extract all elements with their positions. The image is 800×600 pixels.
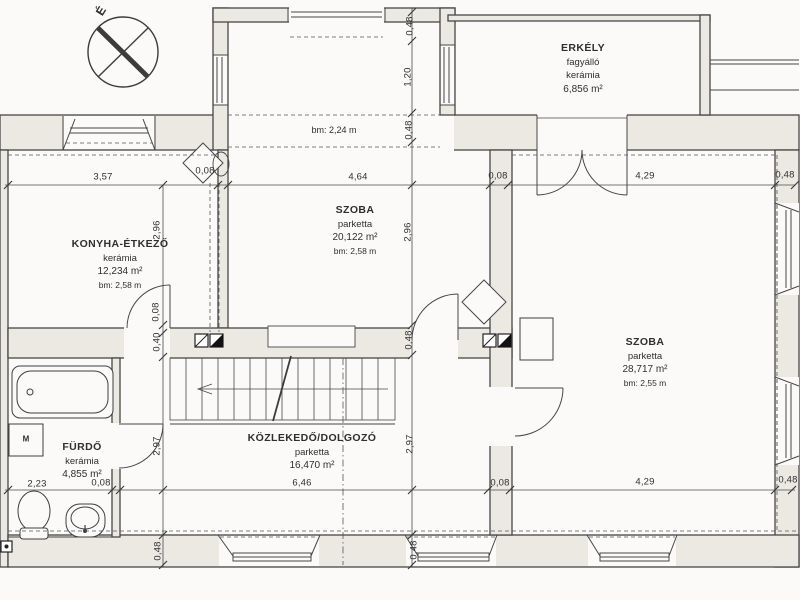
dim-label: 0,08 xyxy=(488,171,507,182)
kitchen-window xyxy=(63,116,155,150)
cabinet xyxy=(520,318,553,360)
floor-drain-icon xyxy=(1,541,12,552)
dim-label: 2,23 xyxy=(27,479,46,490)
room-right-area: 28,717 m² xyxy=(622,363,667,377)
dim-label: 0,48 xyxy=(153,541,164,560)
bay-left-window xyxy=(213,55,228,105)
bay-right-window xyxy=(440,45,455,105)
room-right-height: bm: 2,55 m xyxy=(622,377,667,391)
room-label-hall: KÖZLEKEDŐ/DOLGOZÓ parketta 16,470 m² xyxy=(248,432,377,473)
dim-label: 0,40 xyxy=(152,332,163,351)
dim-label: 0,08 xyxy=(490,478,509,489)
bottom-window-3 xyxy=(587,535,677,566)
hall-area: 16,470 m² xyxy=(248,459,377,473)
room-middle-area: 20,122 m² xyxy=(332,231,377,245)
bathroom-name: FÜRDŐ xyxy=(62,441,101,455)
dim-label: 4,64 xyxy=(348,172,367,183)
floor-plan-sheet: É ERKÉLY fagyálló kerámia 6,856 m² KONYH… xyxy=(0,0,800,600)
right-wall-window-1 xyxy=(775,203,799,295)
north-arrow-icon xyxy=(88,17,158,87)
balcony-name: ERKÉLY xyxy=(561,42,605,56)
dim-label: 0,48 xyxy=(409,540,420,559)
room-label-bathroom: FÜRDŐ kerámia 4,855 m² xyxy=(62,441,101,482)
right-room-door-arc xyxy=(515,388,563,436)
hall-floor: parketta xyxy=(248,445,377,459)
room-label-room-middle: SZOBA parketta 20,122 m² bm: 2,58 m xyxy=(332,204,377,258)
dim-label: 4,29 xyxy=(635,477,654,488)
wall-niche xyxy=(268,326,355,347)
dim-label: 2,96 xyxy=(152,220,163,239)
toilet-icon xyxy=(18,491,50,539)
dim-label: 0,08 xyxy=(151,302,162,321)
dim-label: 4,29 xyxy=(635,171,654,182)
dim-label: 2,97 xyxy=(405,434,416,453)
floor-plan-drawing xyxy=(0,0,800,600)
room-right-name: SZOBA xyxy=(622,336,667,350)
kitchen-floor: kerámia xyxy=(72,252,169,266)
room-middle-name: SZOBA xyxy=(332,204,377,218)
balcony-note: fagyálló xyxy=(561,56,605,70)
bay-height-label: bm: 2,24 m xyxy=(311,125,356,135)
room-middle-floor: parketta xyxy=(332,218,377,232)
bathroom-floor: kerámia xyxy=(62,454,101,468)
dim-label: 0,48 xyxy=(775,170,794,181)
room-label-kitchen: KONYHA-ÉTKEZŐ kerámia 12,234 m² bm: 2,58… xyxy=(72,238,169,292)
dim-label: 1,20 xyxy=(403,67,414,86)
dim-label: 0,48 xyxy=(404,330,415,349)
balcony-floor: kerámia xyxy=(561,69,605,83)
dim-label: 0,08 xyxy=(195,166,214,177)
room-label-balcony: ERKÉLY fagyálló kerámia 6,856 m² xyxy=(561,42,605,96)
dim-label: 0,48 xyxy=(404,120,415,139)
right-wall-window-2 xyxy=(775,377,799,465)
dim-label: 0,48 xyxy=(405,16,416,35)
right-room-door-opening xyxy=(489,387,513,446)
balcony-french-door xyxy=(537,113,627,195)
dim-label: 2,97 xyxy=(152,436,163,455)
dim-label: 3,57 xyxy=(93,172,112,183)
dim-label: 0,48 xyxy=(778,475,797,486)
room-right-floor: parketta xyxy=(622,350,667,364)
room-label-room-right: SZOBA parketta 28,717 m² bm: 2,55 m xyxy=(622,336,667,390)
washing-machine-label: M xyxy=(23,435,30,444)
kitchen-area: 12,234 m² xyxy=(72,265,169,279)
kitchen-name: KONYHA-ÉTKEZŐ xyxy=(72,238,169,252)
hall-name: KÖZLEKEDŐ/DOLGOZÓ xyxy=(248,432,377,446)
kitchen-height: bm: 2,58 m xyxy=(72,279,169,293)
dim-label: 2,96 xyxy=(403,222,414,241)
dim-label: 0,08 xyxy=(91,478,110,489)
middle-room-door-opening xyxy=(410,327,458,359)
dim-label: 6,46 xyxy=(292,478,311,489)
balcony-area: 6,856 m² xyxy=(561,83,605,97)
bay-top-window xyxy=(288,7,385,23)
room-middle-height: bm: 2,58 m xyxy=(332,245,377,259)
bathtub-icon xyxy=(12,366,113,418)
bathroom-door-opening xyxy=(111,423,121,469)
bottom-window-1 xyxy=(218,535,320,566)
sink-icon xyxy=(66,504,105,537)
